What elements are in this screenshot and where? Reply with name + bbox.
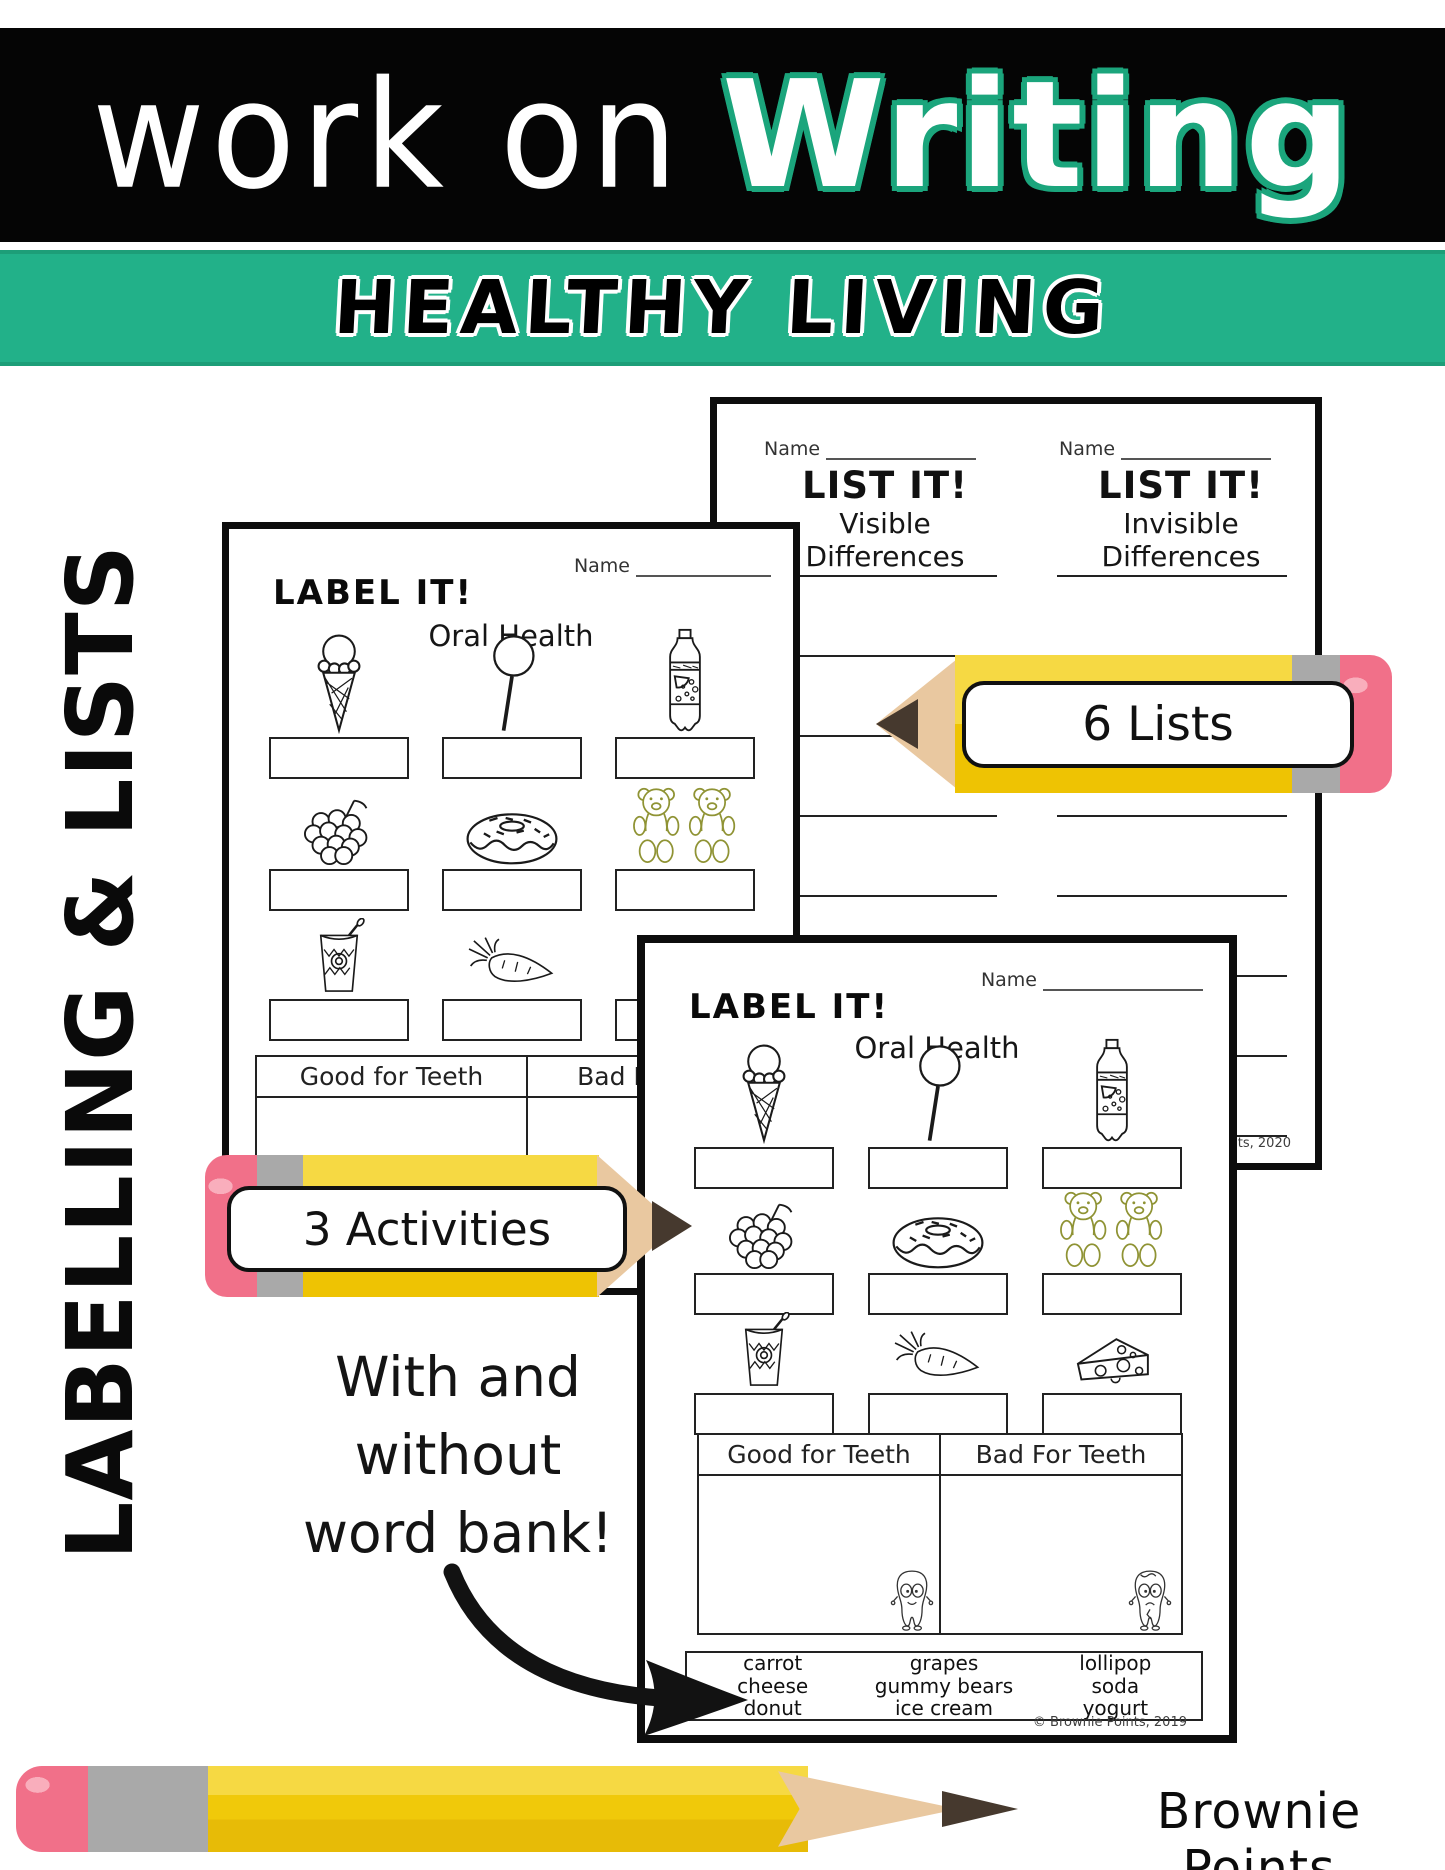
- good-bad-table: Good for Teeth Bad For Teeth: [697, 1433, 1183, 1635]
- carrot-icon: [885, 1330, 991, 1390]
- happy-tooth-icon: [889, 1569, 935, 1631]
- pencil-wood-tip: [778, 1768, 958, 1850]
- label-box: [269, 737, 409, 779]
- label-box: [615, 869, 755, 911]
- label-box: [694, 1147, 834, 1189]
- name-field: Name: [981, 969, 1203, 991]
- copyright-2019: © Brownie Points, 2019: [1033, 1715, 1187, 1730]
- label-box: [442, 737, 582, 779]
- label-it-title: LABEL IT!: [273, 573, 473, 613]
- label-box: [694, 1273, 834, 1315]
- label-box: [1042, 1273, 1182, 1315]
- carrot-icon: [459, 936, 565, 996]
- label-box: [269, 869, 409, 911]
- yogurt-icon: [308, 918, 370, 996]
- gummy-bears-icon: [1055, 1188, 1169, 1270]
- subtitle-banner: HEALTHY LIVING: [0, 250, 1445, 366]
- pencil-eraser: [16, 1766, 88, 1852]
- label-box: [1042, 1393, 1182, 1435]
- pencil-body: [208, 1766, 808, 1852]
- side-label-labelling-lists: LABELLING & LISTS: [30, 516, 170, 1588]
- word-bank-col-2: grapesgummy bearsice cream: [858, 1652, 1029, 1720]
- soda-bottle-icon: [1089, 1038, 1135, 1144]
- name-field: Name: [1059, 438, 1271, 460]
- label-box: [442, 869, 582, 911]
- word-bank-note: With and without word bank!: [248, 1338, 668, 1572]
- pencil-point: [942, 1791, 1018, 1827]
- name-line: [636, 561, 771, 577]
- sad-tooth-icon: [1127, 1569, 1173, 1631]
- donut-icon: [888, 1212, 988, 1270]
- name-line: [1121, 444, 1271, 460]
- label-box: [269, 999, 409, 1041]
- label-box: [615, 737, 755, 779]
- name-line: [1043, 975, 1203, 991]
- ice-cream-icon: [310, 630, 368, 734]
- soda-bottle-icon: [662, 628, 708, 734]
- label-box: [868, 1393, 1008, 1435]
- subtitle-healthy-living: HEALTHY LIVING: [332, 265, 1113, 351]
- word-bank-col-1: carrotcheesedonut: [687, 1652, 858, 1720]
- gummy-bears-icon: [628, 784, 742, 866]
- six-lists-badge: 6 Lists: [962, 681, 1354, 768]
- label-box: [1042, 1147, 1182, 1189]
- three-activities-badge: 3 Activities: [227, 1186, 627, 1272]
- label-box: [868, 1273, 1008, 1315]
- good-for-teeth-header: Good for Teeth: [699, 1435, 941, 1474]
- word-bank-col-3: lollipopsodayogurt: [1030, 1652, 1201, 1720]
- label-box: [868, 1147, 1008, 1189]
- food-grid: [677, 1063, 1199, 1435]
- worksheet-label-it-with-bank: LABEL IT! Name Oral Health Good for Teet…: [637, 935, 1237, 1743]
- ice-cream-icon: [735, 1040, 793, 1144]
- word-bank: carrotcheesedonut grapesgummy bearsice c…: [685, 1651, 1203, 1721]
- lollipop-icon: [910, 1042, 966, 1144]
- lollipop-icon: [484, 632, 540, 734]
- bad-for-teeth-header: Bad For Teeth: [941, 1435, 1181, 1474]
- name-field: Name: [574, 555, 771, 577]
- grapes-icon: [718, 1200, 810, 1270]
- title-work-on: work on: [92, 48, 684, 222]
- title-banner: work on Writing: [0, 28, 1445, 242]
- pencil-ferrule: [88, 1766, 208, 1852]
- good-for-teeth-header: Good for Teeth: [257, 1057, 528, 1096]
- name-field: Name: [764, 438, 976, 460]
- product-cover: work on Writing HEALTHY LIVING LABELLING…: [0, 0, 1445, 1870]
- label-box: [694, 1393, 834, 1435]
- cheese-icon: [1067, 1334, 1157, 1390]
- yogurt-icon: [733, 1312, 795, 1390]
- label-box: [442, 999, 582, 1041]
- title-writing: Writing: [722, 49, 1353, 221]
- brand-brownie-points: Brownie Points: [1075, 1783, 1443, 1870]
- grapes-icon: [293, 796, 385, 866]
- name-line: [826, 444, 976, 460]
- label-it-title: LABEL IT!: [689, 987, 889, 1027]
- donut-icon: [462, 808, 562, 866]
